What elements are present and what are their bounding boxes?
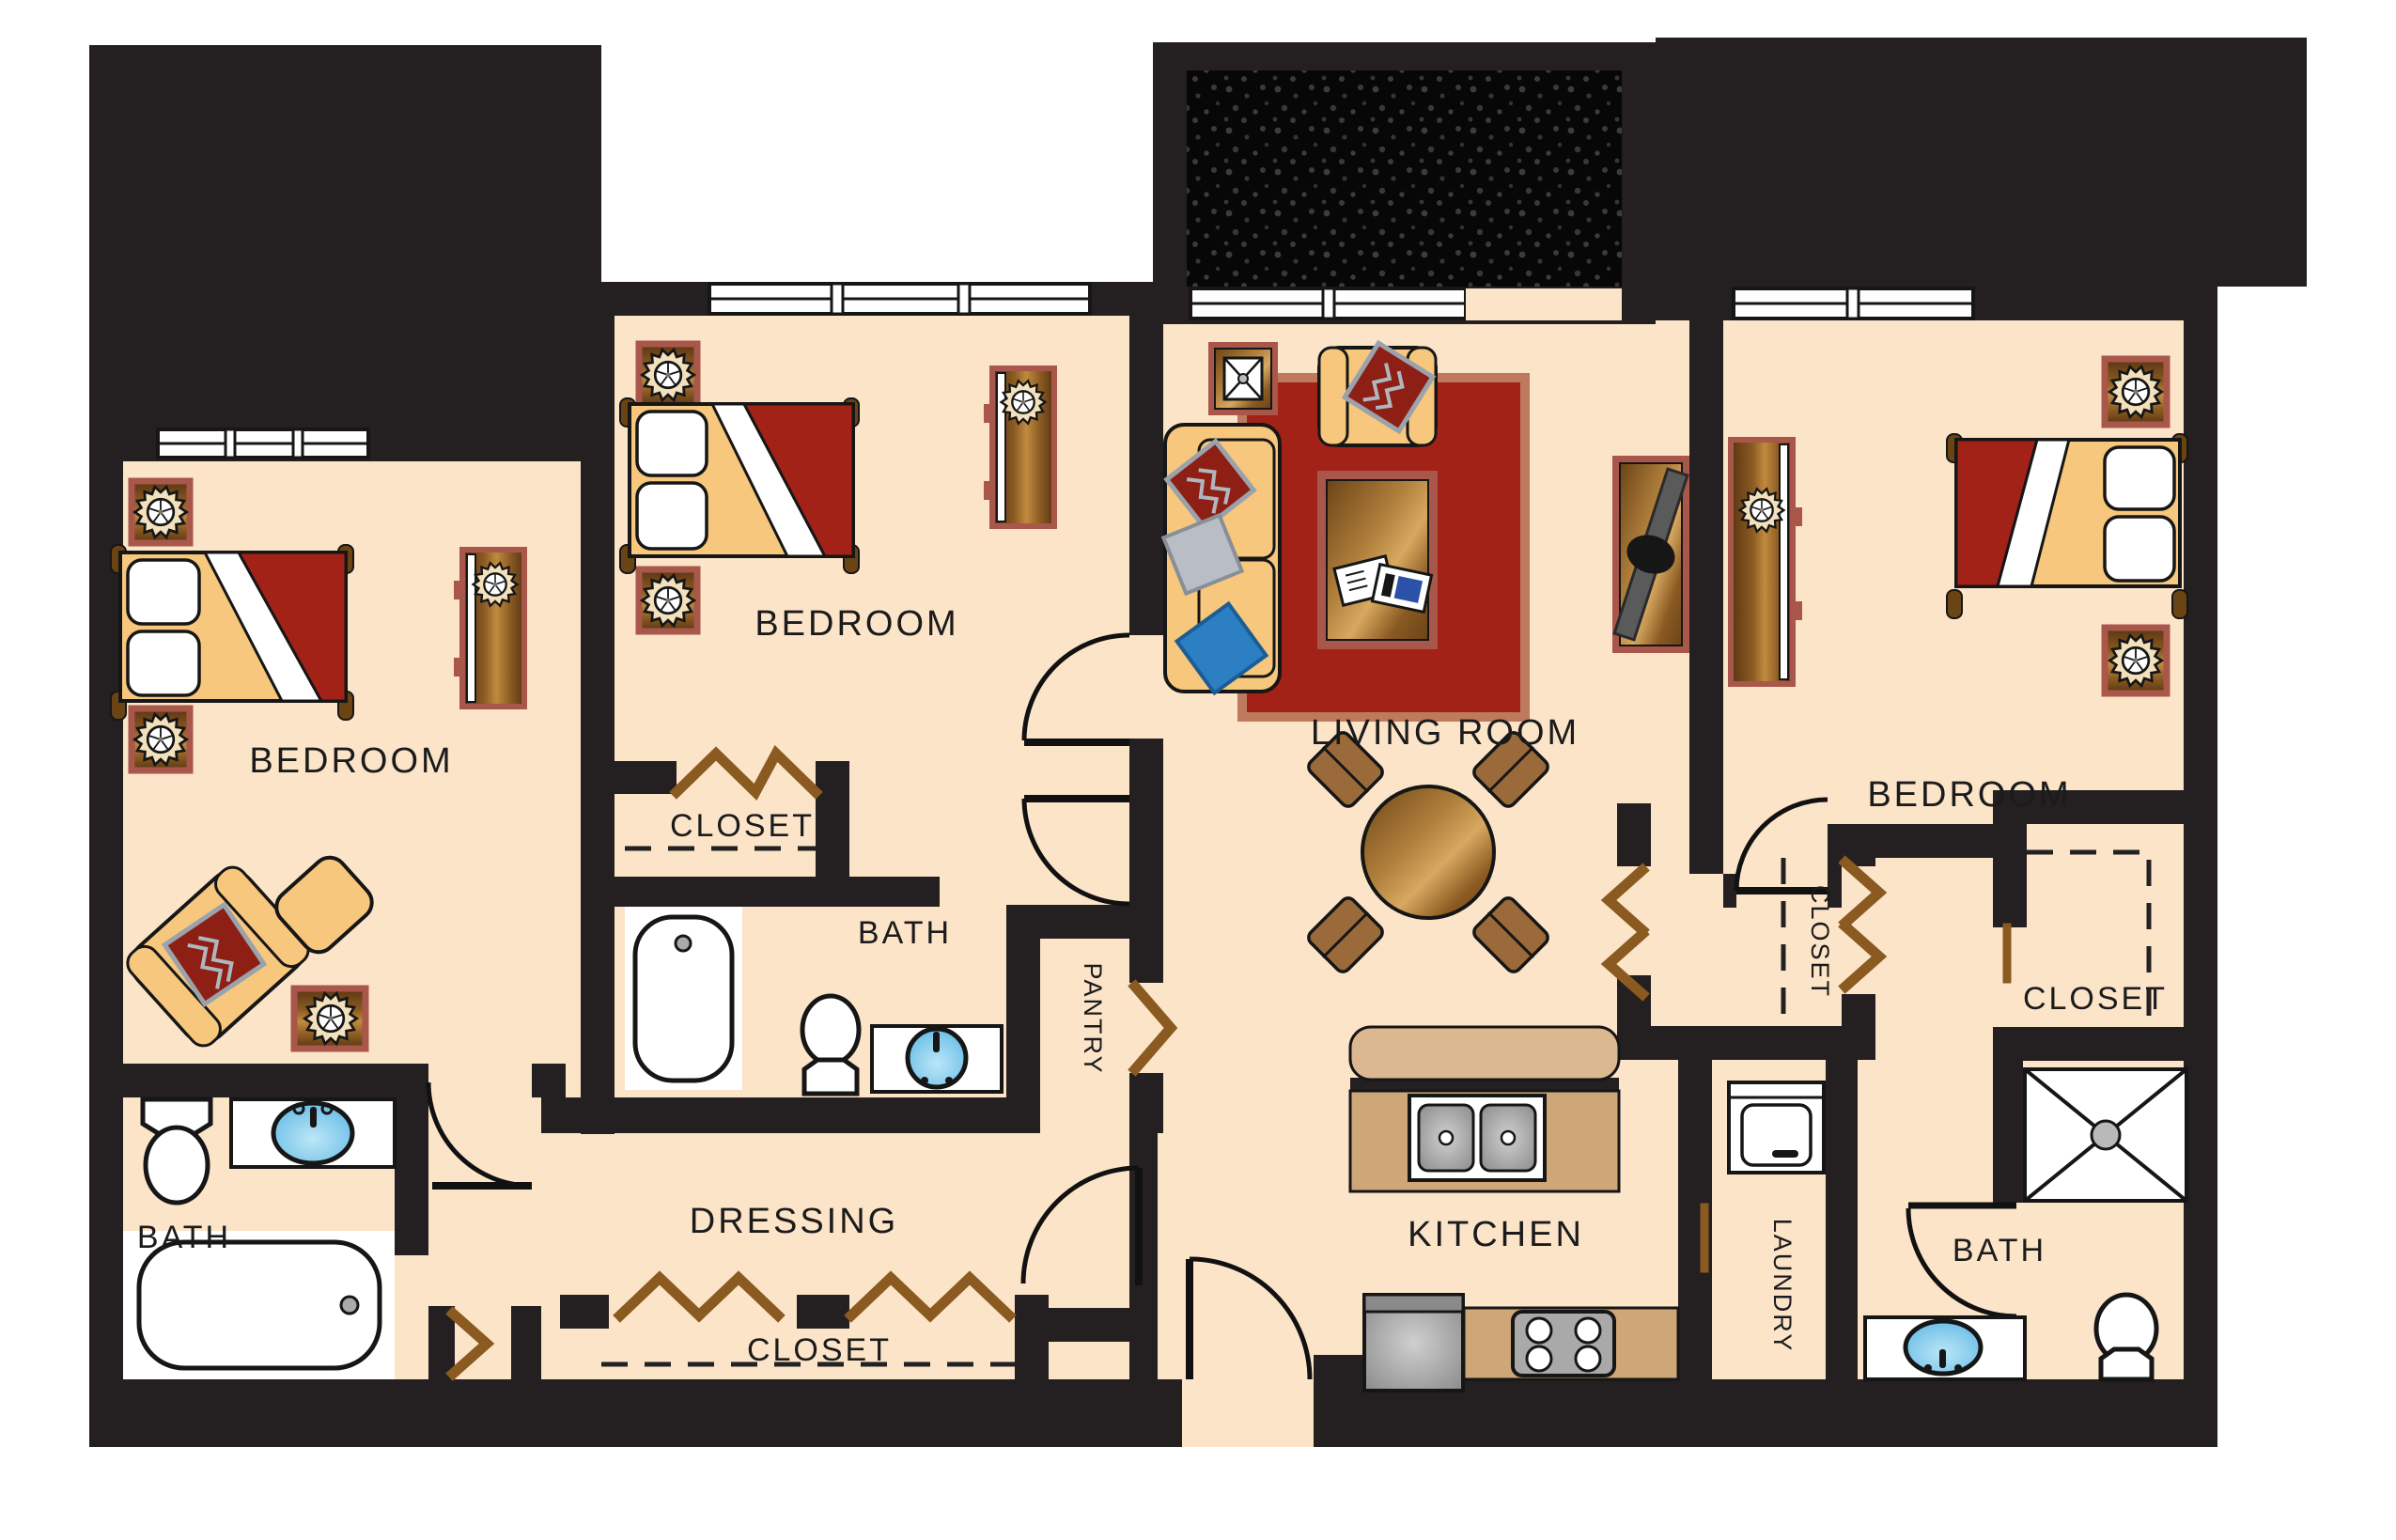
label-bath-right: BATH (1953, 1233, 2046, 1268)
stove-counter (1464, 1308, 1678, 1379)
label-laundry: LAUNDRY (1768, 1219, 1797, 1353)
label-bedroom-left: BEDROOM (249, 741, 453, 781)
vanity-sink (231, 1099, 395, 1167)
washer (1729, 1082, 1824, 1173)
label-closet-right: CLOSET (2023, 981, 2168, 1017)
dresser-right (1731, 440, 1802, 684)
armchair-living (1319, 343, 1436, 445)
sofa (1163, 425, 1280, 692)
entry-threshold (1182, 1379, 1314, 1447)
side-table-frame (1208, 342, 1278, 415)
window-bedroom-left (158, 429, 368, 458)
label-pantry: PANTRY (1079, 962, 1107, 1074)
vanity-sink (872, 1026, 1002, 1092)
dining-table (1362, 786, 1494, 918)
pillow (128, 560, 199, 624)
kitchen-island (1350, 1027, 1619, 1191)
pillow (2105, 517, 2174, 581)
patio-terrace-center (1153, 42, 1656, 324)
label-kitchen: KITCHEN (1408, 1215, 1584, 1254)
label-bath-left: BATH (137, 1220, 231, 1255)
window-living-room (1190, 288, 1466, 319)
vanity-sink (1865, 1317, 2025, 1379)
label-closet-dressing: CLOSET (747, 1332, 892, 1368)
label-closet-middle: CLOSET (670, 808, 815, 844)
pillow (128, 631, 199, 695)
laundry-fixtures (1729, 1082, 1824, 1173)
patio-terrace-right (1656, 38, 2307, 287)
coffee-table (1317, 471, 1438, 649)
window-bedroom-middle (709, 284, 1090, 314)
toilet (143, 1099, 210, 1203)
label-bedroom-middle: BEDROOM (755, 604, 958, 644)
floorplan-svg: BEDROOM BEDROOM LIVING ROOM BEDROOM CLOS… (0, 0, 2396, 1540)
fridge (1364, 1295, 1463, 1391)
floorplan-canvas: BEDROOM BEDROOM LIVING ROOM BEDROOM CLOS… (0, 0, 2396, 1540)
pillow (637, 483, 707, 549)
patio-opening (1466, 288, 1622, 320)
label-bath-middle: BATH (858, 915, 952, 951)
window-bedroom-right (1734, 288, 1973, 319)
label-dressing: DRESSING (690, 1202, 898, 1241)
bathtub-vertical (625, 907, 742, 1090)
pillow (2105, 447, 2174, 509)
label-closet-hall: CLOSET (1806, 885, 1834, 998)
patio-terrace-left (89, 45, 601, 428)
label-bedroom-right: BEDROOM (1867, 775, 2071, 815)
bed-left (111, 545, 353, 720)
bed-middle (620, 398, 859, 573)
tv-console (1601, 456, 1701, 653)
shower (2025, 1069, 2186, 1201)
toilet (802, 996, 859, 1094)
label-living-room: LIVING ROOM (1311, 713, 1579, 753)
toilet (2096, 1295, 2156, 1379)
pillow (637, 412, 707, 475)
